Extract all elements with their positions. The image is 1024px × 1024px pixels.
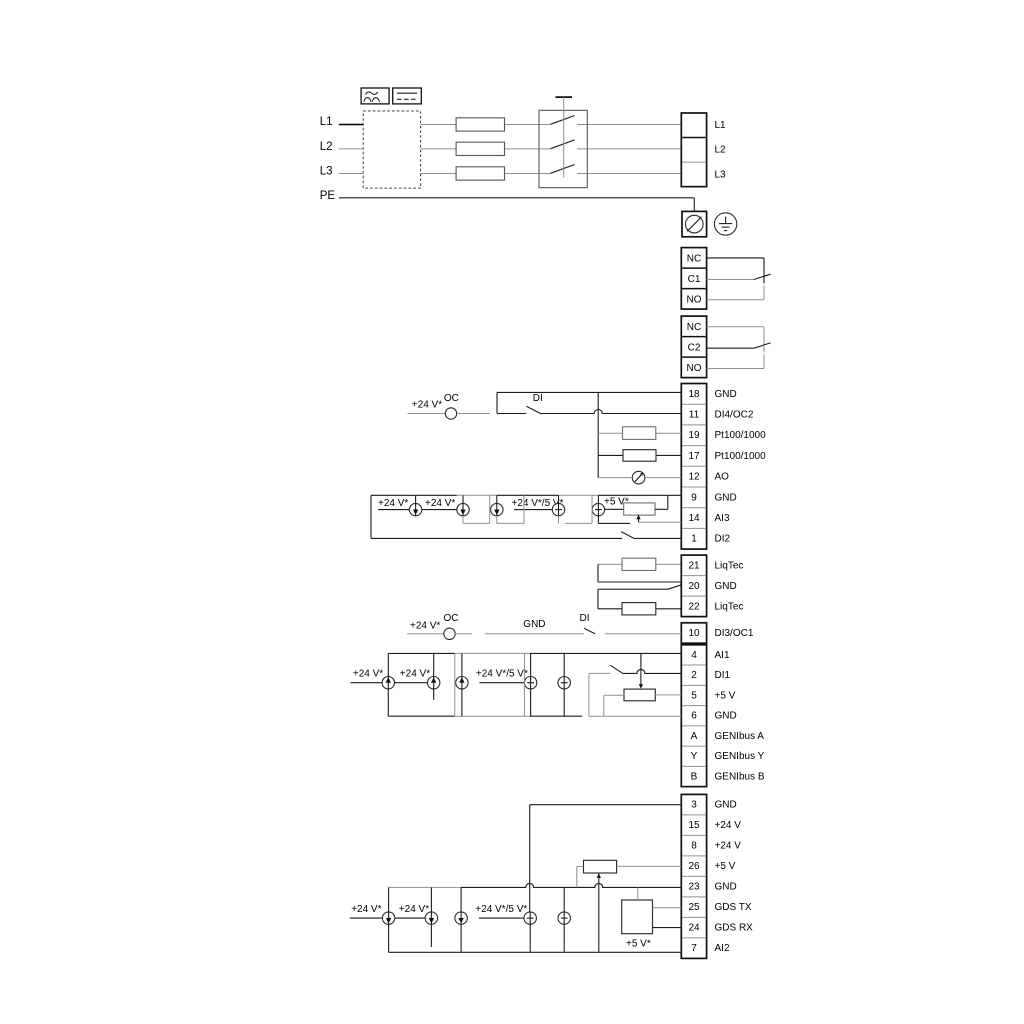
svg-text:25: 25 (688, 902, 700, 913)
svg-text:A: A (691, 731, 698, 742)
svg-text:12: 12 (688, 472, 700, 483)
svg-text:22: 22 (688, 601, 700, 612)
svg-text:DI2: DI2 (715, 534, 731, 545)
svg-text:15: 15 (688, 820, 700, 831)
svg-text:GND: GND (715, 581, 737, 592)
svg-text:+24 V*: +24 V* (353, 668, 383, 679)
svg-text:4: 4 (691, 650, 697, 661)
svg-text:18: 18 (688, 389, 700, 400)
svg-text:L2: L2 (715, 145, 727, 156)
svg-text:+24 V*: +24 V* (412, 399, 442, 410)
svg-text:AO: AO (715, 472, 730, 483)
svg-text:24: 24 (688, 923, 700, 934)
svg-text:1: 1 (691, 534, 697, 545)
svg-text:+24 V*: +24 V* (378, 498, 408, 509)
svg-text:L1: L1 (715, 120, 727, 131)
svg-text:AI3: AI3 (715, 513, 730, 524)
svg-text:DI3/OC1: DI3/OC1 (715, 628, 754, 639)
svg-text:20: 20 (688, 581, 700, 592)
svg-text:L1: L1 (320, 116, 333, 128)
svg-text:9: 9 (691, 492, 697, 503)
svg-text:+24 V*/5 V*: +24 V*/5 V* (476, 668, 528, 679)
svg-text:11: 11 (689, 409, 700, 420)
svg-text:GND: GND (523, 619, 545, 630)
svg-text:+24 V*: +24 V* (425, 498, 455, 509)
svg-text:DI4/OC2: DI4/OC2 (715, 409, 754, 420)
svg-text:NC: NC (687, 322, 701, 333)
svg-text:C2: C2 (688, 342, 701, 353)
svg-text:NC: NC (687, 253, 701, 264)
svg-text:+24 V*: +24 V* (410, 620, 440, 631)
svg-text:14: 14 (688, 513, 700, 524)
svg-text:C1: C1 (688, 274, 701, 285)
svg-text:L3: L3 (320, 166, 333, 178)
svg-text:19: 19 (688, 430, 700, 441)
svg-text:GND: GND (715, 882, 737, 893)
svg-text:+5 V: +5 V (715, 861, 736, 872)
svg-text:AI1: AI1 (715, 650, 730, 661)
svg-text:GENIbus Y: GENIbus Y (715, 751, 765, 762)
svg-text:GDS TX: GDS TX (715, 902, 752, 913)
svg-text:6: 6 (691, 711, 697, 722)
svg-text:L2: L2 (320, 141, 333, 153)
svg-text:PE: PE (320, 190, 336, 202)
svg-text:+24 V*: +24 V* (351, 904, 381, 915)
svg-text:GND: GND (715, 800, 737, 811)
svg-text:LiqTec: LiqTec (715, 601, 744, 612)
svg-text:+24 V*: +24 V* (399, 904, 429, 915)
svg-text:GND: GND (715, 389, 737, 400)
svg-text:DI1: DI1 (715, 670, 731, 681)
svg-text:7: 7 (691, 943, 697, 954)
svg-text:DI: DI (580, 613, 590, 624)
svg-text:+5 V: +5 V (715, 690, 736, 701)
svg-text:+24 V: +24 V (715, 820, 742, 831)
svg-text:LiqTec: LiqTec (715, 560, 744, 571)
svg-text:+24 V*: +24 V* (400, 668, 430, 679)
svg-text:Pt100/1000: Pt100/1000 (715, 451, 767, 462)
svg-text:GND: GND (715, 711, 737, 722)
svg-text:26: 26 (688, 861, 700, 872)
svg-text:NO: NO (687, 363, 702, 374)
svg-text:Pt100/1000: Pt100/1000 (715, 430, 767, 441)
svg-text:L3: L3 (715, 169, 727, 180)
svg-text:5: 5 (691, 690, 697, 701)
svg-text:Y: Y (691, 751, 698, 762)
svg-text:+5 V*: +5 V* (626, 939, 651, 950)
svg-text:AI2: AI2 (715, 943, 730, 954)
svg-text:NO: NO (687, 294, 702, 305)
svg-text:2: 2 (691, 670, 697, 681)
svg-text:GENIbus B: GENIbus B (715, 771, 765, 782)
svg-text:23: 23 (688, 882, 700, 893)
svg-text:17: 17 (688, 451, 700, 462)
svg-text:+24 V*/5 V*: +24 V*/5 V* (475, 904, 527, 915)
svg-text:GDS RX: GDS RX (715, 923, 754, 934)
svg-text:3: 3 (691, 800, 697, 811)
svg-text:GND: GND (715, 492, 737, 503)
svg-text:B: B (691, 771, 698, 782)
svg-text:GENIbus A: GENIbus A (715, 731, 765, 742)
svg-text:21: 21 (688, 560, 700, 571)
svg-text:10: 10 (688, 628, 700, 639)
svg-text:OC: OC (444, 393, 459, 404)
svg-text:+24 V: +24 V (715, 841, 742, 852)
svg-text:DI: DI (533, 393, 543, 404)
svg-text:OC: OC (444, 613, 459, 624)
svg-text:8: 8 (691, 841, 697, 852)
